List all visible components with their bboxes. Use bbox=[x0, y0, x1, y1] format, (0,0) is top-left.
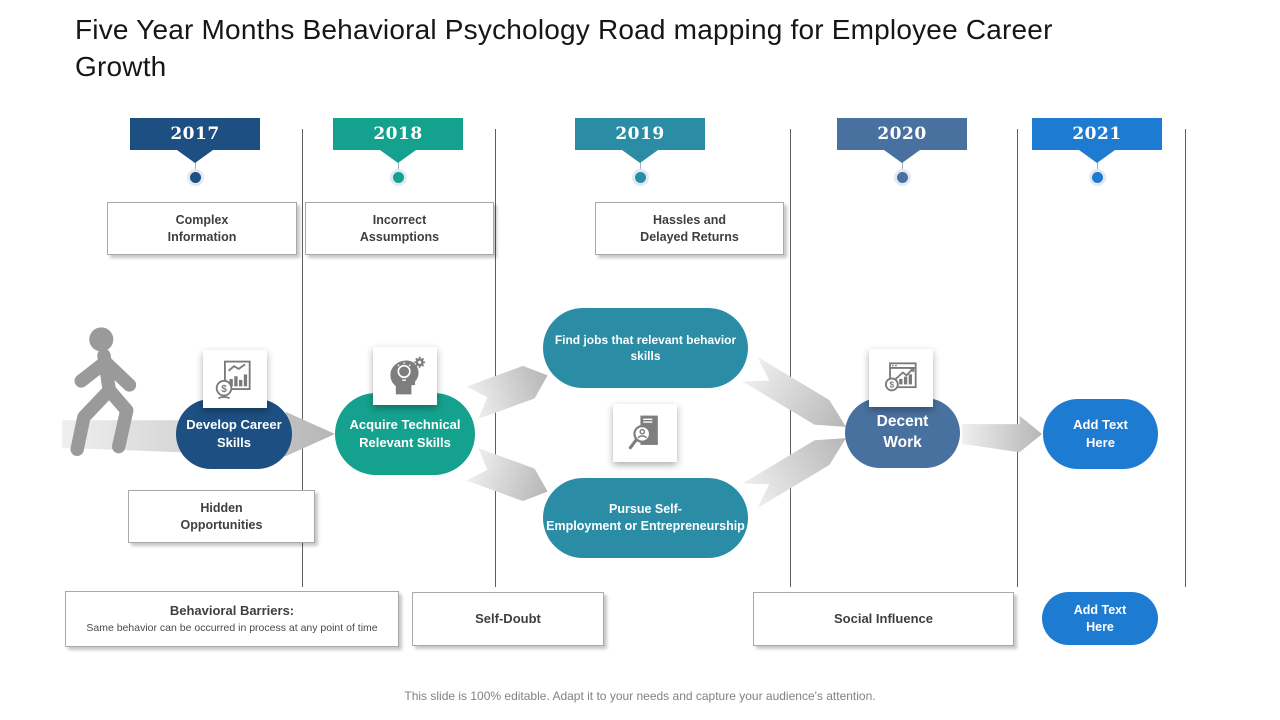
obstacle-label: Hassles and Delayed Returns bbox=[640, 212, 739, 245]
finance-growth-chart-icon: $ bbox=[203, 350, 267, 408]
obstacle-label: Complex Information bbox=[168, 212, 237, 245]
merge-arrow-upper bbox=[742, 356, 853, 439]
timeline-dot-2018 bbox=[393, 172, 404, 183]
page-title: Five Year Months Behavioral Psychology R… bbox=[75, 12, 1105, 86]
year-tab-2021: 2021 bbox=[1032, 118, 1162, 150]
column-divider bbox=[790, 129, 791, 587]
year-label: 2019 bbox=[615, 124, 664, 144]
bottom-pill-add-text: Add Text Here bbox=[1042, 592, 1158, 645]
column-divider bbox=[495, 129, 496, 587]
milestone-pill-add-text: Add Text Here bbox=[1043, 399, 1158, 469]
year-pointer bbox=[622, 150, 658, 163]
flow-arrow-to-add-text bbox=[962, 415, 1042, 453]
milestone-pill-pursue-self-employment: Pursue Self- Employment or Entrepreneurs… bbox=[543, 478, 748, 558]
year-pointer bbox=[884, 150, 920, 163]
svg-text:$: $ bbox=[890, 381, 895, 390]
column-divider bbox=[1185, 129, 1186, 587]
column-divider bbox=[1017, 129, 1018, 587]
year-label: 2021 bbox=[1072, 124, 1121, 144]
obstacle-box-complex-information: Complex Information bbox=[107, 202, 297, 255]
obstacle-box-hidden-opportunities: Hidden Opportunities bbox=[128, 490, 315, 543]
milestone-label: Acquire Technical Relevant Skills bbox=[349, 416, 460, 451]
candidate-search-icon bbox=[613, 404, 677, 462]
obstacle-label: Incorrect Assumptions bbox=[360, 212, 439, 245]
timeline-dot-2020 bbox=[897, 172, 908, 183]
obstacle-label: Self-Doubt bbox=[475, 611, 541, 628]
milestone-label: Add Text Here bbox=[1073, 416, 1128, 451]
idea-mind-gear-icon bbox=[373, 347, 437, 405]
year-pointer bbox=[1079, 150, 1115, 163]
year-tab-2018: 2018 bbox=[333, 118, 463, 150]
milestone-pill-decent-work: Decent Work bbox=[845, 398, 960, 468]
milestone-pill-find-jobs: Find jobs that relevant behavior skills bbox=[543, 308, 748, 388]
obstacle-box-hassles-delayed-returns: Hassles and Delayed Returns bbox=[595, 202, 784, 255]
obstacle-box-behavioral-barriers: Behavioral Barriers: Same behavior can b… bbox=[65, 591, 399, 647]
milestone-label: Add Text Here bbox=[1074, 602, 1127, 636]
year-label: 2020 bbox=[877, 124, 926, 144]
year-pointer bbox=[177, 150, 213, 163]
milestone-pill-acquire-technical-skills: Acquire Technical Relevant Skills bbox=[335, 393, 475, 475]
footer-note: This slide is 100% editable. Adapt it to… bbox=[0, 689, 1280, 703]
obstacle-box-social-influence: Social Influence bbox=[753, 592, 1014, 646]
timeline-dot-2021 bbox=[1092, 172, 1103, 183]
year-tab-2017: 2017 bbox=[130, 118, 260, 150]
merge-arrow-lower bbox=[742, 425, 853, 508]
obstacle-label: Hidden Opportunities bbox=[181, 500, 263, 533]
timeline-dot-2019 bbox=[635, 172, 646, 183]
obstacle-subtitle: Same behavior can be occurred in process… bbox=[86, 622, 377, 636]
milestone-label: Find jobs that relevant behavior skills bbox=[555, 332, 736, 364]
svg-text:$: $ bbox=[221, 384, 227, 395]
obstacle-title: Behavioral Barriers: bbox=[170, 603, 294, 620]
milestone-label: Pursue Self- Employment or Entrepreneurs… bbox=[546, 501, 745, 535]
year-label: 2017 bbox=[170, 124, 219, 144]
year-tab-2020: 2020 bbox=[837, 118, 967, 150]
obstacle-box-incorrect-assumptions: Incorrect Assumptions bbox=[305, 202, 494, 255]
milestone-label: Decent Work bbox=[877, 412, 929, 454]
obstacle-box-self-doubt: Self-Doubt bbox=[412, 592, 604, 646]
year-tab-2019: 2019 bbox=[575, 118, 705, 150]
slide-canvas: Five Year Months Behavioral Psychology R… bbox=[0, 0, 1280, 720]
profit-analysis-icon: $ bbox=[869, 349, 933, 407]
branch-arrow-down bbox=[466, 447, 553, 508]
walking-person-icon bbox=[66, 326, 150, 465]
milestone-label: Develop Career Skills bbox=[186, 416, 281, 451]
year-pointer bbox=[380, 150, 416, 163]
year-label: 2018 bbox=[373, 124, 422, 144]
timeline-dot-2017 bbox=[190, 172, 201, 183]
branch-arrow-up bbox=[466, 358, 553, 419]
milestone-pill-develop-career-skills: Develop Career Skills bbox=[176, 399, 292, 469]
obstacle-label: Social Influence bbox=[834, 611, 933, 628]
